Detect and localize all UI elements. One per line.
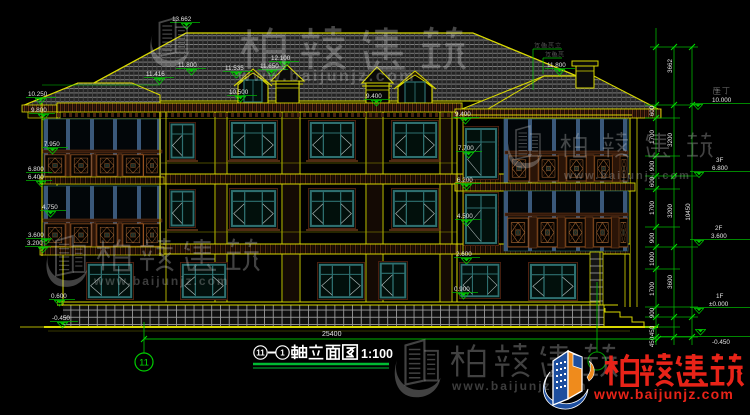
svg-text:1700: 1700 — [649, 201, 656, 215]
svg-text:1: 1 — [280, 349, 285, 358]
svg-text:3600: 3600 — [667, 275, 674, 289]
svg-text:0.900: 0.900 — [454, 286, 470, 293]
svg-text:10.250: 10.250 — [28, 91, 48, 98]
svg-text:3662: 3662 — [667, 59, 674, 73]
svg-text:1F: 1F — [716, 293, 724, 300]
svg-text:25400: 25400 — [322, 331, 342, 338]
svg-text:6.400: 6.400 — [28, 174, 44, 181]
svg-text:±0.000: ±0.000 — [709, 301, 729, 308]
svg-text:11.416: 11.416 — [146, 71, 165, 78]
svg-text:900: 900 — [649, 307, 656, 318]
svg-text:0.600: 0.600 — [51, 293, 67, 300]
svg-text:11: 11 — [139, 358, 149, 369]
svg-text:2.600: 2.600 — [456, 251, 472, 258]
svg-text:-0.450: -0.450 — [52, 315, 70, 322]
svg-text:900: 900 — [649, 232, 656, 243]
svg-text:3200: 3200 — [667, 133, 674, 147]
svg-text:12.100: 12.100 — [271, 55, 291, 62]
svg-text:3.600: 3.600 — [711, 233, 727, 240]
svg-text:www.baijunjz.com: www.baijunjz.com — [563, 170, 691, 182]
svg-text:3.200: 3.200 — [27, 240, 43, 247]
svg-text:4.750: 4.750 — [42, 204, 58, 211]
svg-text:4.500: 4.500 — [457, 213, 473, 220]
svg-text:11: 11 — [256, 349, 265, 358]
svg-text:6.200: 6.200 — [457, 177, 473, 184]
svg-text:www.baijunjz.com: www.baijunjz.com — [237, 68, 416, 85]
svg-text:2F: 2F — [715, 225, 723, 232]
svg-text:450: 450 — [649, 325, 656, 336]
svg-text:www.baijunjz.com: www.baijunjz.com — [93, 274, 230, 288]
svg-text:-0.450: -0.450 — [712, 339, 730, 346]
svg-text:7.700: 7.700 — [458, 145, 474, 152]
svg-text:11.800: 11.800 — [547, 62, 566, 69]
svg-text:1700: 1700 — [649, 282, 656, 296]
svg-text:7.950: 7.950 — [44, 141, 60, 148]
svg-text:1:100: 1:100 — [361, 347, 393, 361]
svg-text:9.400: 9.400 — [366, 93, 382, 100]
svg-text:9.400: 9.400 — [455, 111, 471, 118]
svg-text:3F: 3F — [716, 157, 724, 164]
svg-text:6.800: 6.800 — [28, 166, 44, 173]
svg-text:600: 600 — [649, 105, 656, 116]
svg-text:3200: 3200 — [667, 204, 674, 218]
svg-text:1700: 1700 — [649, 130, 656, 144]
svg-text:1000: 1000 — [649, 252, 656, 266]
svg-text:10.000: 10.000 — [712, 97, 732, 104]
svg-text:10450: 10450 — [685, 203, 692, 221]
svg-text:9.800: 9.800 — [31, 107, 47, 114]
svg-text:10.500: 10.500 — [229, 89, 249, 96]
svg-text:6.800: 6.800 — [712, 165, 728, 172]
svg-text:3.600: 3.600 — [28, 232, 44, 239]
svg-text:www.baijunjz.com: www.baijunjz.com — [593, 386, 734, 402]
